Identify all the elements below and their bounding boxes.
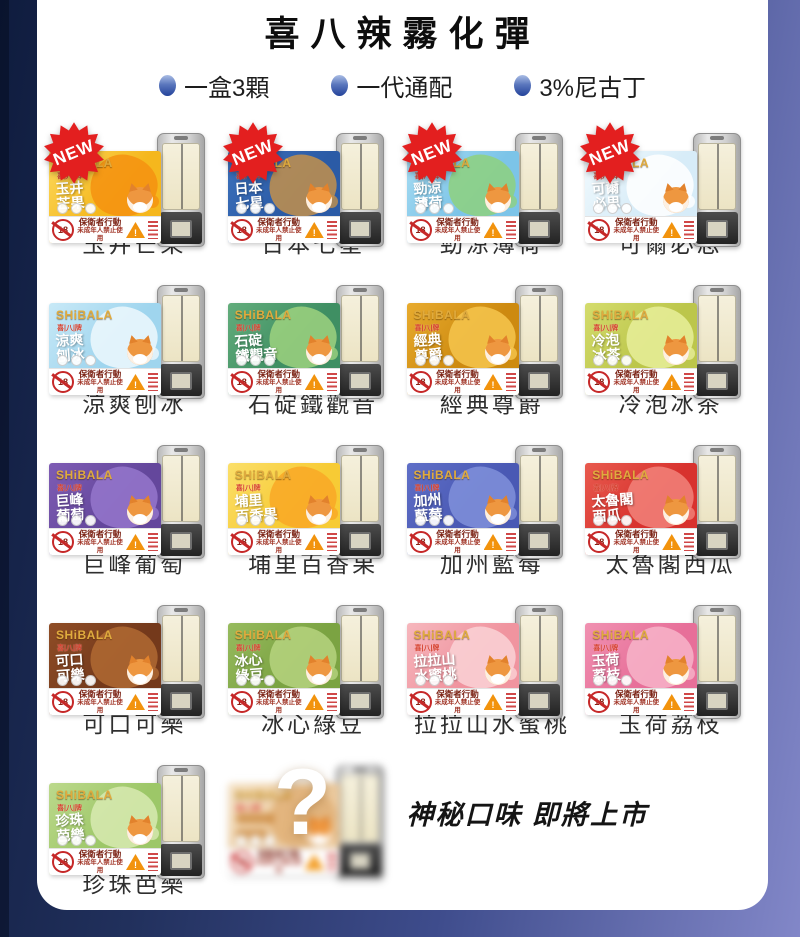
pod-base [339, 684, 381, 716]
pod-base [160, 212, 202, 244]
pod-liquid [341, 775, 379, 842]
badge-dot-icon [71, 355, 82, 366]
bullet-dot-icon [159, 75, 176, 96]
badge-dot-icon [85, 203, 96, 214]
badge-dot-icon [236, 835, 247, 846]
warning-subtitle: 未成年人禁止使用 [435, 379, 481, 394]
bullet-box-count: 一盒3顆 [159, 68, 269, 103]
warning-title: 保衛者行動 [613, 530, 659, 540]
pod-contact-window [349, 532, 371, 550]
badge-dot-icon [85, 355, 96, 366]
badge-dot-icon [71, 515, 82, 526]
product-visual: SHiBALA喜|八|牌石碇鐵觀音18保衛者行動未成年人禁止使用! [228, 303, 384, 403]
warning-text: 保衛者行動未成年人禁止使用 [256, 370, 302, 395]
vape-pod [693, 133, 741, 247]
age-18-icon: 18 [231, 371, 253, 393]
product-card: SHiBALA喜|八|牌涼爽刨冰18保衛者行動未成年人禁止使用!涼爽刨冰 [45, 265, 224, 425]
age-18-icon: 18 [588, 219, 610, 241]
warning-text: 保衛者行動未成年人禁止使用 [256, 690, 302, 715]
pod-wick-channel [360, 144, 362, 209]
age-18-icon: 18 [410, 371, 432, 393]
shiba-muzzle [133, 674, 147, 684]
warning-text: 保衛者行動未成年人禁止使用 [613, 530, 659, 555]
shiba-muzzle [491, 354, 505, 364]
product-card: SHiBALA喜|八|牌珍珠芭樂18保衛者行動未成年人禁止使用!珍珠芭樂 [45, 745, 224, 905]
warning-strip: 18保衛者行動未成年人禁止使用! [49, 688, 161, 715]
warning-strip: 18保衛者行動未成年人禁止使用! [228, 528, 340, 555]
badge-dot-icon [85, 675, 96, 686]
warning-strip: 18保衛者行動未成年人禁止使用! [407, 528, 519, 555]
pod-mouthpiece [174, 448, 188, 452]
warning-triangle-icon: ! [484, 694, 503, 710]
pod-contact-window [528, 532, 550, 550]
pod-base [518, 524, 560, 556]
product-visual: SHiBALA喜|八|牌涼爽刨冰18保衛者行動未成年人禁止使用! [49, 303, 205, 403]
shiba-muzzle [491, 674, 505, 684]
pod-wick-channel [717, 296, 719, 361]
pod-contact-window [170, 372, 192, 390]
age-18-icon: 18 [52, 219, 74, 241]
fine-print [684, 533, 694, 551]
pod-base [339, 844, 381, 876]
new-badge: NEW [42, 121, 106, 185]
shiba-mascot-icon [663, 187, 689, 213]
badge-dot-icon [593, 203, 604, 214]
pod-mouthpiece [353, 768, 367, 772]
badge-dot-icon [57, 835, 68, 846]
age-18-icon: 18 [588, 371, 610, 393]
pod-base [339, 524, 381, 556]
warning-subtitle: 未成年人禁止使用 [435, 699, 481, 714]
product-box: SHiBALA喜|八|牌太魯閣西瓜18保衛者行動未成年人禁止使用! [585, 463, 697, 555]
flavor-badges [236, 203, 275, 214]
warning-triangle-icon: ! [126, 374, 145, 390]
product-card: NEWSHiBALA喜|八|牌玉井芒果18保衛者行動未成年人禁止使用!玉井芒果 [45, 113, 224, 265]
warning-subtitle: 未成年人禁止使用 [613, 379, 659, 394]
product-box: SHiBALA喜|八|牌巨峰葡萄18保衛者行動未成年人禁止使用! [49, 463, 161, 555]
warning-subtitle: 未成年人禁止使用 [256, 699, 302, 714]
flavor-badges [57, 203, 96, 214]
warning-triangle-icon: ! [662, 374, 681, 390]
vape-pod [693, 605, 741, 719]
pod-wick-channel [360, 776, 362, 841]
warning-triangle-icon: ! [126, 534, 145, 550]
product-card: SHiBALA喜|八|牌玉荷荔枝18保衛者行動未成年人禁止使用!玉荷荔枝 [581, 585, 760, 745]
fine-print [148, 853, 158, 871]
warning-text: 保衛者行動未成年人禁止使用 [77, 370, 123, 395]
warning-strip: 18保衛者行動未成年人禁止使用! [585, 528, 697, 555]
pod-wick-channel [717, 144, 719, 209]
badge-dot-icon [443, 675, 454, 686]
pod-liquid [341, 455, 379, 522]
badge-dot-icon [236, 515, 247, 526]
pod-base [339, 212, 381, 244]
shiba-muzzle [312, 354, 326, 364]
badge-dot-icon [236, 203, 247, 214]
badge-dot-icon [429, 675, 440, 686]
new-badge: NEW [400, 121, 464, 185]
brand-logo: SHiBALA [235, 468, 292, 482]
warning-text: 保衛者行動未成年人禁止使用 [435, 218, 481, 243]
product-card: NEWSHiBALA喜|八|牌勁涼薄荷18保衛者行動未成年人禁止使用!勁涼薄荷 [403, 113, 582, 265]
product-card: SHiBALA喜|八|牌石碇鐵觀音18保衛者行動未成年人禁止使用!石碇鐵觀音 [224, 265, 403, 425]
product-card: SHiBALA喜|八|牌可口可樂18保衛者行動未成年人禁止使用!可口可樂 [45, 585, 224, 745]
pod-liquid [520, 143, 558, 210]
badge-dot-icon [85, 515, 96, 526]
pod-contact-window [170, 532, 192, 550]
pod-wick-channel [539, 144, 541, 209]
new-badge: NEW [578, 121, 642, 185]
pod-contact-window [349, 220, 371, 238]
product-visual: SHiBALA喜|八|牌玉荷荔枝18保衛者行動未成年人禁止使用! [585, 623, 741, 723]
age-18-icon: 18 [52, 531, 74, 553]
content-panel: 喜八辣霧化彈 一盒3顆 一代通配 3%尼古丁 NEWSHiBALA喜|八|牌玉井… [37, 0, 768, 910]
pod-contact-window [706, 220, 728, 238]
warning-subtitle: 未成年人禁止使用 [256, 227, 302, 242]
pod-mouthpiece [710, 136, 724, 140]
brand-logo: SHiBALA [56, 628, 113, 642]
bullet-dot-icon [514, 75, 531, 96]
flavor-badges [593, 203, 632, 214]
warning-title: 保衛者行動 [77, 218, 123, 228]
shiba-mascot-icon [306, 499, 332, 525]
warning-text: 保衛者行動未成年人禁止使用 [613, 370, 659, 395]
badge-dot-icon [429, 355, 440, 366]
pod-wick-channel [181, 456, 183, 521]
badge-dot-icon [236, 675, 247, 686]
bullet-label: 一代通配 [356, 68, 452, 103]
age-18-icon: 18 [231, 691, 253, 713]
vape-pod [693, 285, 741, 399]
pod-liquid [162, 143, 200, 210]
flavor-badges [415, 515, 454, 526]
vape-pod [336, 445, 384, 559]
age-18-icon: 18 [231, 851, 253, 873]
pod-wick-channel [539, 296, 541, 361]
pod-contact-window [170, 692, 192, 710]
vape-pod [336, 285, 384, 399]
product-box: SHiBALA喜|八|牌可口可樂18保衛者行動未成年人禁止使用! [49, 623, 161, 715]
shiba-muzzle [669, 674, 683, 684]
warning-triangle-icon: ! [484, 374, 503, 390]
fine-print [506, 221, 516, 239]
product-visual: SHiBALA喜|八|牌可口可樂18保衛者行動未成年人禁止使用! [49, 623, 205, 723]
vape-pod [515, 605, 563, 719]
warning-subtitle: 未成年人禁止使用 [435, 539, 481, 554]
warning-strip: 18保衛者行動未成年人禁止使用! [407, 216, 519, 243]
warning-subtitle: 未成年人禁止使用 [613, 539, 659, 554]
shiba-muzzle [133, 354, 147, 364]
brand-logo: SHiBALA [235, 628, 292, 642]
left-edge-shade [0, 0, 9, 937]
product-card: SHiBALA喜|八|牌拉拉山水蜜桃18保衛者行動未成年人禁止使用!拉拉山水蜜桃 [403, 585, 582, 745]
mystery-card: SHiBALA喜|八|牌18保衛者行動未成年人禁止使用!? [224, 745, 403, 905]
warning-triangle-icon: ! [305, 694, 324, 710]
warning-triangle-icon: ! [305, 534, 324, 550]
shiba-mascot-icon [485, 499, 511, 525]
badge-dot-icon [71, 675, 82, 686]
fine-print [148, 373, 158, 391]
brand-logo: SHiBALA [414, 468, 471, 482]
fine-print [327, 533, 337, 551]
age-18-icon: 18 [52, 851, 74, 873]
badge-dot-icon [607, 675, 618, 686]
pod-mouthpiece [353, 608, 367, 612]
warning-text: 保衛者行動未成年人禁止使用 [256, 530, 302, 555]
warning-title: 保衛者行動 [256, 530, 302, 540]
pod-wick-channel [717, 616, 719, 681]
shiba-muzzle [133, 834, 147, 844]
badge-dot-icon [71, 203, 82, 214]
warning-strip: 18保衛者行動未成年人禁止使用! [585, 216, 697, 243]
flavor-badges [236, 835, 275, 846]
vape-pod [157, 445, 205, 559]
flavor-badges [57, 835, 96, 846]
fine-print [506, 693, 516, 711]
pod-wick-channel [181, 616, 183, 681]
fine-print [327, 853, 337, 871]
product-box: SHiBALA喜|八|牌加州藍莓18保衛者行動未成年人禁止使用! [407, 463, 519, 555]
badge-dot-icon [429, 203, 440, 214]
warning-text: 保衛者行動未成年人禁止使用 [435, 370, 481, 395]
warning-title: 保衛者行動 [77, 690, 123, 700]
warning-text: 保衛者行動未成年人禁止使用 [435, 690, 481, 715]
product-box: SHiBALA喜|八|牌冷泡冰茶18保衛者行動未成年人禁止使用! [585, 303, 697, 395]
badge-dot-icon [621, 515, 632, 526]
warning-title: 保衛者行動 [435, 370, 481, 380]
warning-title: 保衛者行動 [77, 850, 123, 860]
product-visual: SHiBALA喜|八|牌拉拉山水蜜桃18保衛者行動未成年人禁止使用! [407, 623, 563, 723]
pod-contact-window [706, 532, 728, 550]
badge-dot-icon [621, 355, 632, 366]
pod-contact-window [349, 852, 371, 870]
pod-contact-window [170, 852, 192, 870]
bullet-dot-icon [331, 75, 348, 96]
shiba-mascot-icon [306, 339, 332, 365]
vape-pod [515, 445, 563, 559]
warning-text: 保衛者行動未成年人禁止使用 [77, 218, 123, 243]
pod-contact-window [349, 372, 371, 390]
vape-pod [336, 605, 384, 719]
badge-dot-icon [57, 203, 68, 214]
flavor-badges [415, 203, 454, 214]
badge-dot-icon [443, 203, 454, 214]
pod-wick-channel [717, 456, 719, 521]
warning-subtitle: 未成年人禁止使用 [256, 539, 302, 554]
brand-subtitle: 喜|八|牌 [236, 803, 261, 813]
shiba-muzzle [669, 354, 683, 364]
fine-print [148, 533, 158, 551]
flavor-badges [593, 355, 632, 366]
pod-mouthpiece [174, 768, 188, 772]
shiba-mascot-icon [485, 187, 511, 213]
vape-pod [515, 285, 563, 399]
warning-subtitle: 未成年人禁止使用 [256, 859, 302, 874]
product-card: NEWSHiBALA喜|八|牌可爾必思18保衛者行動未成年人禁止使用!可爾必思 [581, 113, 760, 265]
warning-triangle-icon: ! [126, 694, 145, 710]
pod-mouthpiece [710, 448, 724, 452]
pod-mouthpiece [532, 288, 546, 292]
product-box: SHiBALA喜|八|牌拉拉山水蜜桃18保衛者行動未成年人禁止使用! [407, 623, 519, 715]
fine-print [327, 373, 337, 391]
product-box: SHiBALA喜|八|牌經典尊爵18保衛者行動未成年人禁止使用! [407, 303, 519, 395]
pod-base [518, 364, 560, 396]
warning-text: 保衛者行動未成年人禁止使用 [77, 530, 123, 555]
warning-title: 保衛者行動 [613, 218, 659, 228]
product-box: SHiBALA喜|八|牌冰心綠豆18保衛者行動未成年人禁止使用! [228, 623, 340, 715]
warning-strip: 18保衛者行動未成年人禁止使用! [407, 688, 519, 715]
product-card: NEWSHiBALA喜|八|牌日本七星18保衛者行動未成年人禁止使用!日本七星 [224, 113, 403, 265]
bullet-label: 一盒3顆 [184, 68, 269, 103]
pod-base [696, 364, 738, 396]
pod-liquid [698, 295, 736, 362]
blurred-text-bar [236, 813, 274, 824]
warning-subtitle: 未成年人禁止使用 [77, 227, 123, 242]
warning-triangle-icon: ! [484, 222, 503, 238]
page-background: { "page": { "title": "喜八辣霧化彈", "bullets"… [0, 0, 800, 937]
pod-liquid [520, 295, 558, 362]
badge-dot-icon [443, 355, 454, 366]
warning-subtitle: 未成年人禁止使用 [613, 227, 659, 242]
warning-strip: 18保衛者行動未成年人禁止使用! [49, 216, 161, 243]
shiba-muzzle [491, 514, 505, 524]
badge-dot-icon [250, 515, 261, 526]
pod-mouthpiece [532, 608, 546, 612]
warning-triangle-icon: ! [662, 694, 681, 710]
warning-title: 保衛者行動 [435, 218, 481, 228]
pod-wick-channel [360, 296, 362, 361]
product-visual: SHiBALA喜|八|牌珍珠芭樂18保衛者行動未成年人禁止使用! [49, 783, 205, 883]
product-card: SHiBALA喜|八|牌冷泡冰茶18保衛者行動未成年人禁止使用!冷泡冰茶 [581, 265, 760, 425]
warning-strip: 18保衛者行動未成年人禁止使用! [49, 848, 161, 875]
shiba-mascot-icon [127, 659, 153, 685]
flavor-badges [57, 675, 96, 686]
pod-contact-window [528, 692, 550, 710]
pod-base [160, 844, 202, 876]
warning-subtitle: 未成年人禁止使用 [435, 227, 481, 242]
pod-contact-window [528, 372, 550, 390]
pod-base [160, 684, 202, 716]
fine-print [684, 221, 694, 239]
shiba-mascot-icon [663, 339, 689, 365]
warning-strip: 18保衛者行動未成年人禁止使用! [228, 368, 340, 395]
shiba-muzzle [669, 514, 683, 524]
warning-text: 保衛者行動未成年人禁止使用 [77, 690, 123, 715]
badge-dot-icon [593, 355, 604, 366]
pod-liquid [162, 295, 200, 362]
badge-dot-icon [250, 835, 261, 846]
shiba-mascot-icon [663, 659, 689, 685]
pod-wick-channel [181, 144, 183, 209]
age-18-icon: 18 [410, 531, 432, 553]
warning-subtitle: 未成年人禁止使用 [77, 539, 123, 554]
pod-liquid [341, 295, 379, 362]
vape-pod [515, 133, 563, 247]
product-card: SHiBALA喜|八|牌巨峰葡萄18保衛者行動未成年人禁止使用!巨峰葡萄 [45, 425, 224, 585]
pod-base [339, 364, 381, 396]
warning-subtitle: 未成年人禁止使用 [77, 859, 123, 874]
pod-base [696, 524, 738, 556]
badge-dot-icon [57, 355, 68, 366]
shiba-mascot-icon [306, 187, 332, 213]
flavor-badges [236, 515, 275, 526]
brand-logo: SHiBALA [56, 308, 113, 322]
age-18-icon: 18 [588, 691, 610, 713]
vape-pod [157, 133, 205, 247]
badge-dot-icon [607, 515, 618, 526]
flavor-badges [236, 675, 275, 686]
pod-liquid [520, 615, 558, 682]
product-box: SHiBALA喜|八|牌涼爽刨冰18保衛者行動未成年人禁止使用! [49, 303, 161, 395]
warning-title: 保衛者行動 [77, 370, 123, 380]
badge-dot-icon [415, 203, 426, 214]
product-visual: SHiBALA喜|八|牌冰心綠豆18保衛者行動未成年人禁止使用! [228, 623, 384, 723]
product-grid: NEWSHiBALA喜|八|牌玉井芒果18保衛者行動未成年人禁止使用!玉井芒果N… [37, 113, 768, 905]
pod-mouthpiece [353, 288, 367, 292]
pod-contact-window [349, 692, 371, 710]
pod-mouthpiece [174, 608, 188, 612]
product-visual: SHiBALA喜|八|牌加州藍莓18保衛者行動未成年人禁止使用! [407, 463, 563, 563]
product-visual: SHiBALA喜|八|牌經典尊爵18保衛者行動未成年人禁止使用! [407, 303, 563, 403]
shiba-muzzle [312, 514, 326, 524]
brand-logo: SHiBALA [235, 308, 292, 322]
badge-dot-icon [264, 515, 275, 526]
shiba-muzzle [133, 514, 147, 524]
warning-triangle-icon: ! [305, 374, 324, 390]
badge-dot-icon [264, 203, 275, 214]
shiba-muzzle [491, 202, 505, 212]
bullet-label: 3%尼古丁 [539, 68, 646, 103]
badge-dot-icon [415, 515, 426, 526]
brand-logo: SHiBALA [56, 788, 113, 802]
pod-liquid [341, 615, 379, 682]
flavor-badges [57, 515, 96, 526]
pod-base [518, 212, 560, 244]
fine-print [148, 693, 158, 711]
product-visual: SHiBALA喜|八|牌巨峰葡萄18保衛者行動未成年人禁止使用! [49, 463, 205, 563]
badge-dot-icon [250, 355, 261, 366]
warning-title: 保衛者行動 [256, 218, 302, 228]
brand-logo: SHiBALA [414, 628, 471, 642]
flavor-badges [593, 515, 632, 526]
badge-dot-icon [236, 355, 247, 366]
badge-dot-icon [250, 675, 261, 686]
warning-subtitle: 未成年人禁止使用 [77, 699, 123, 714]
vape-pod [157, 765, 205, 879]
warning-strip: 18保衛者行動未成年人禁止使用! [407, 368, 519, 395]
page-title: 喜八辣霧化彈 [37, 0, 768, 57]
pod-liquid [162, 615, 200, 682]
warning-strip: 18保衛者行動未成年人禁止使用! [49, 528, 161, 555]
badge-dot-icon [264, 355, 275, 366]
pod-mouthpiece [532, 448, 546, 452]
badge-dot-icon [621, 203, 632, 214]
warning-triangle-icon: ! [305, 222, 324, 238]
badge-dot-icon [85, 835, 96, 846]
pod-wick-channel [181, 776, 183, 841]
vape-pod [693, 445, 741, 559]
pod-liquid [162, 455, 200, 522]
pod-liquid [520, 455, 558, 522]
pod-contact-window [706, 372, 728, 390]
warning-text: 保衛者行動未成年人禁止使用 [613, 218, 659, 243]
badge-dot-icon [593, 515, 604, 526]
fine-print [506, 533, 516, 551]
pod-liquid [698, 143, 736, 210]
product-visual: SHiBALA喜|八|牌埔里百香果18保衛者行動未成年人禁止使用! [228, 463, 384, 563]
brand-logo: SHiBALA [56, 468, 113, 482]
mystery-announce-text: 神秘口味 即將上市 [403, 719, 761, 905]
